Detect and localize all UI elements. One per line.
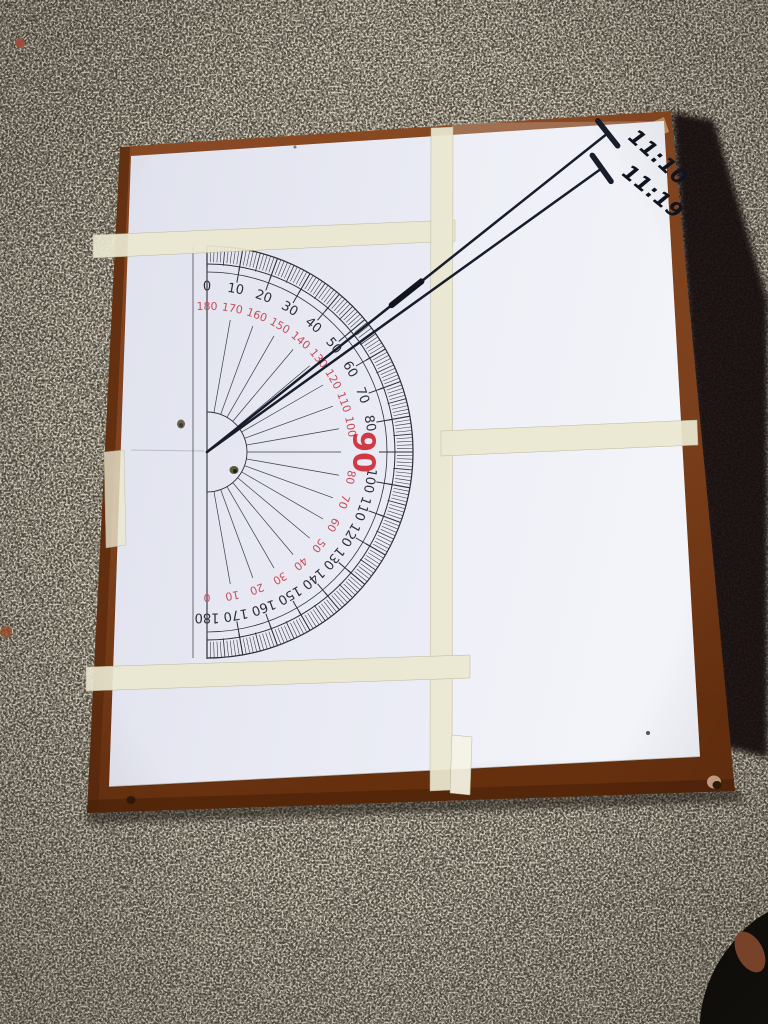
photo-scene: 0102030405060708010011012013014015016017… (0, 0, 768, 1024)
vignette (0, 0, 768, 1024)
